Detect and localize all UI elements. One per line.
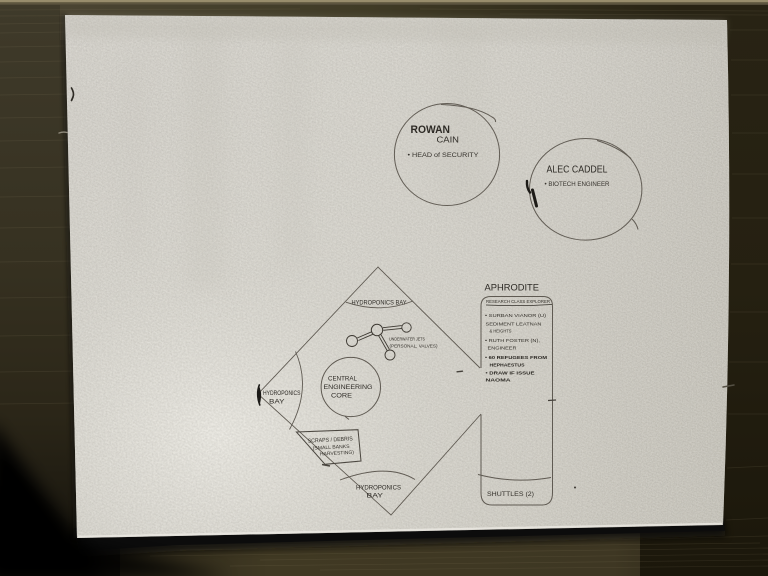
svg-text:ENGINEER: ENGINEER [488,346,518,352]
svg-text:CORE: CORE [331,393,353,400]
svg-text:• SURBAN VIANOR (U): • SURBAN VIANOR (U) [485,313,546,319]
svg-text:& HEIGHTS: & HEIGHTS [490,329,512,334]
svg-text:ALEC CADDEL: ALEC CADDEL [547,165,608,176]
svg-text:HYDROPONICS BAY: HYDROPONICS BAY [352,300,407,307]
svg-text:• RUTH FOSTER (N),: • RUTH FOSTER (N), [485,338,540,344]
svg-text:SHUTTLES (2): SHUTTLES (2) [487,491,534,498]
svg-text:HYDROPONICS: HYDROPONICS [356,485,401,492]
svg-text:SEDIMENT LEATNAN: SEDIMENT LEATNAN [486,322,543,328]
svg-text:CAIN: CAIN [437,135,460,145]
svg-text:CENTRAL: CENTRAL [328,376,357,383]
svg-text:BAY: BAY [269,400,285,406]
svg-text:(PERSONAL, VALVES): (PERSONAL, VALVES) [390,344,439,349]
svg-text:BAY: BAY [367,493,384,500]
svg-text:ENGINEERING: ENGINEERING [324,384,373,391]
svg-text:• 60 REFUGEES FROM: • 60 REFUGEES FROM [485,355,547,361]
svg-text:• DRAW IF ISSUE: • DRAW IF ISSUE [486,371,536,377]
svg-text:• BIOTECH ENGINEER: • BIOTECH ENGINEER [545,182,611,188]
svg-text:HYDROPONICS: HYDROPONICS [263,391,301,397]
svg-text:NAOMA: NAOMA [486,378,512,384]
svg-text:UNDERWATER JETS: UNDERWATER JETS [389,337,425,342]
svg-text:RESEARCH CLASS EXPLORER: RESEARCH CLASS EXPLORER [486,299,551,304]
svg-text:APHRODITE: APHRODITE [485,283,540,294]
svg-text:HEPHAESTUS: HEPHAESTUS [490,363,526,369]
svg-text:• HEAD of SECURITY: • HEAD of SECURITY [408,152,480,159]
